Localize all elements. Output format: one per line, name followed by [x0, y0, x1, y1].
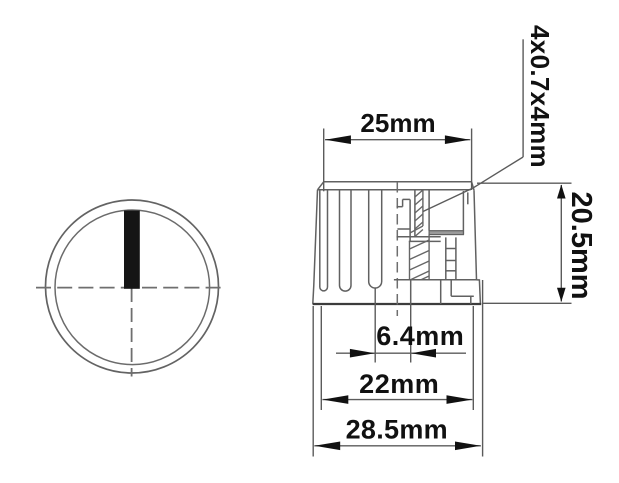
svg-text:22mm: 22mm [359, 369, 439, 399]
svg-text:28.5mm: 28.5mm [346, 415, 448, 445]
svg-text:4x0.7x4mm: 4x0.7x4mm [525, 25, 555, 168]
svg-text:25mm: 25mm [360, 108, 435, 138]
svg-text:6.4mm: 6.4mm [376, 321, 464, 351]
svg-text:20.5mm: 20.5mm [565, 191, 597, 299]
